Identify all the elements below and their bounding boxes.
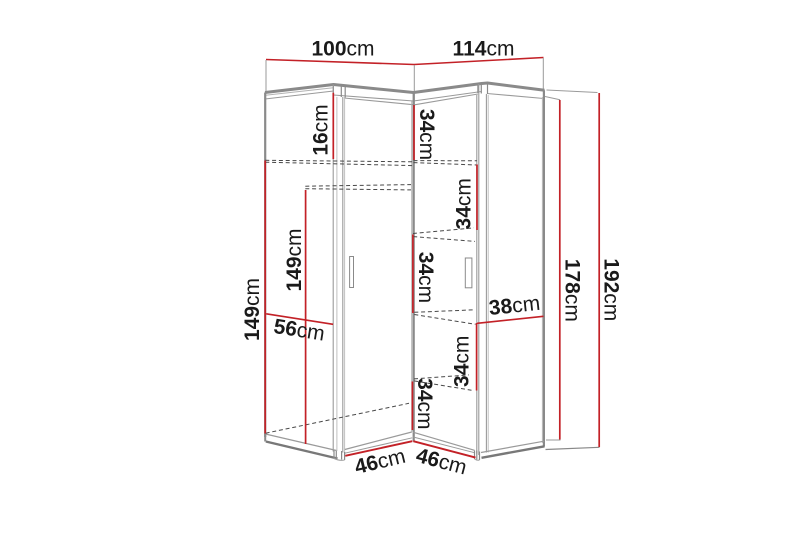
svg-text:178cm: 178cm — [561, 259, 584, 322]
svg-text:16cm: 16cm — [309, 104, 332, 155]
svg-text:149cm: 149cm — [240, 278, 263, 341]
svg-text:34cm: 34cm — [414, 378, 437, 429]
svg-text:149cm: 149cm — [283, 228, 306, 291]
svg-text:34cm: 34cm — [450, 336, 473, 387]
svg-text:34cm: 34cm — [416, 109, 439, 160]
svg-text:100cm: 100cm — [311, 38, 374, 61]
svg-text:34cm: 34cm — [415, 252, 438, 303]
svg-text:114cm: 114cm — [453, 38, 515, 61]
svg-text:34cm: 34cm — [452, 178, 475, 229]
svg-text:192cm: 192cm — [600, 258, 623, 321]
